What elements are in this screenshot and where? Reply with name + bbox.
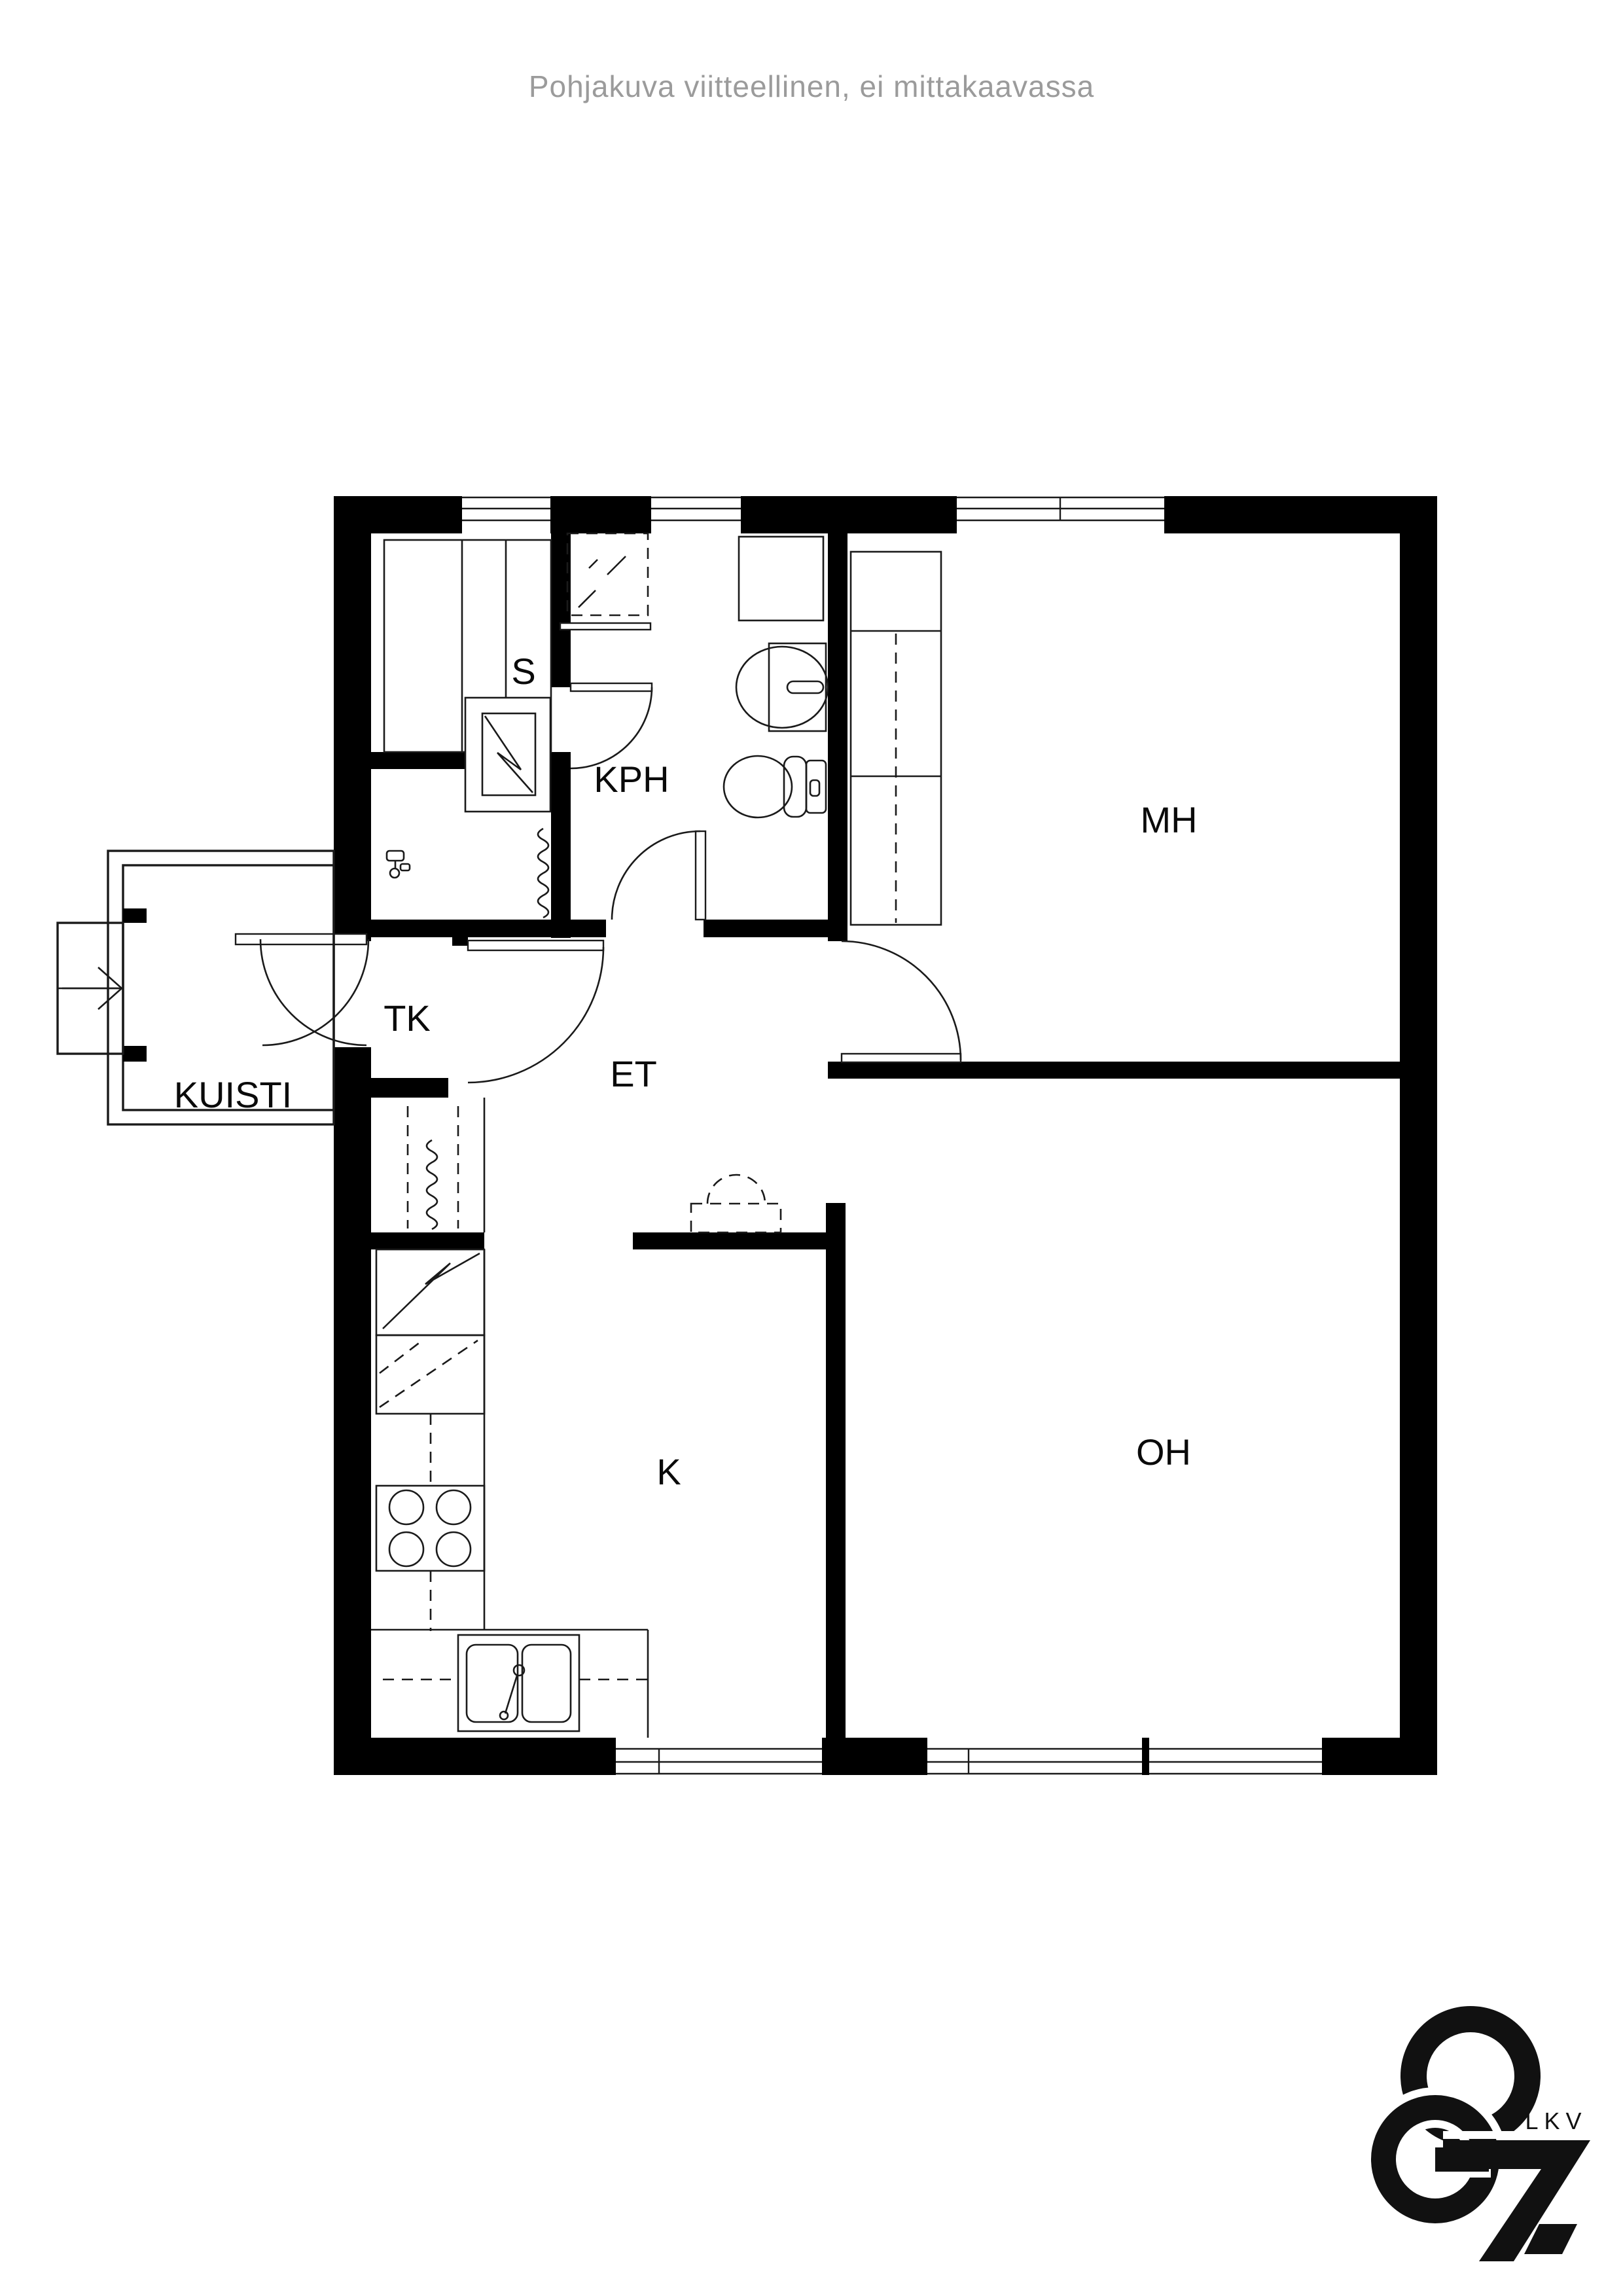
label-bathroom: KPH [594, 759, 669, 800]
kitchen-cabinet [376, 1335, 484, 1414]
sauna-door [571, 683, 652, 768]
fridge-icon [376, 1249, 484, 1335]
hall-closet [408, 1098, 484, 1232]
shower-icon [560, 533, 651, 630]
floorplan-page: Pohjakuva viitteellinen, ei mittakaavass… [0, 0, 1623, 2296]
header-disclaimer: Pohjakuva viitteellinen, ei mittakaavass… [529, 69, 1094, 103]
utility-strip [387, 829, 548, 918]
brand-logo: LKV [1383, 2019, 1590, 2261]
label-porch: KUISTI [174, 1074, 292, 1115]
radiator-icon [538, 829, 548, 918]
label-bedroom: MH [1140, 799, 1197, 840]
entry-arrow-icon [62, 967, 122, 1009]
sauna-stove-icon [465, 698, 550, 812]
stove-icon [376, 1486, 484, 1571]
sink-icon [736, 643, 828, 731]
logo-monogram-icon [1383, 2019, 1590, 2261]
label-living-room: OH [1136, 1431, 1191, 1473]
bathroom-fixtures [560, 533, 828, 920]
wardrobe [851, 552, 941, 925]
toilet-icon [724, 756, 826, 817]
water-heater-icon [427, 1140, 437, 1229]
faucet-icon [387, 851, 410, 878]
exterior-walls [334, 496, 1437, 1775]
fireplace-reservation [691, 1175, 781, 1232]
washer-space [739, 537, 823, 620]
floorplan-drawing: Pohjakuva viitteellinen, ei mittakaavass… [0, 0, 1623, 2296]
bedroom-door [842, 941, 961, 1062]
bathroom-door [612, 831, 705, 920]
label-kitchen: K [656, 1451, 681, 1492]
kitchen-sink-icon [458, 1635, 579, 1731]
kitchen-fixtures [371, 1249, 648, 1738]
hallway-fixtures [408, 1098, 781, 1232]
label-sauna: S [511, 651, 535, 692]
logo-lkv-text: LKV [1525, 2108, 1587, 2134]
bedroom-fixtures [842, 552, 961, 1062]
label-vestibule: TK [383, 997, 431, 1039]
label-hallway: ET [610, 1053, 657, 1094]
vestibule-door [468, 941, 603, 1083]
